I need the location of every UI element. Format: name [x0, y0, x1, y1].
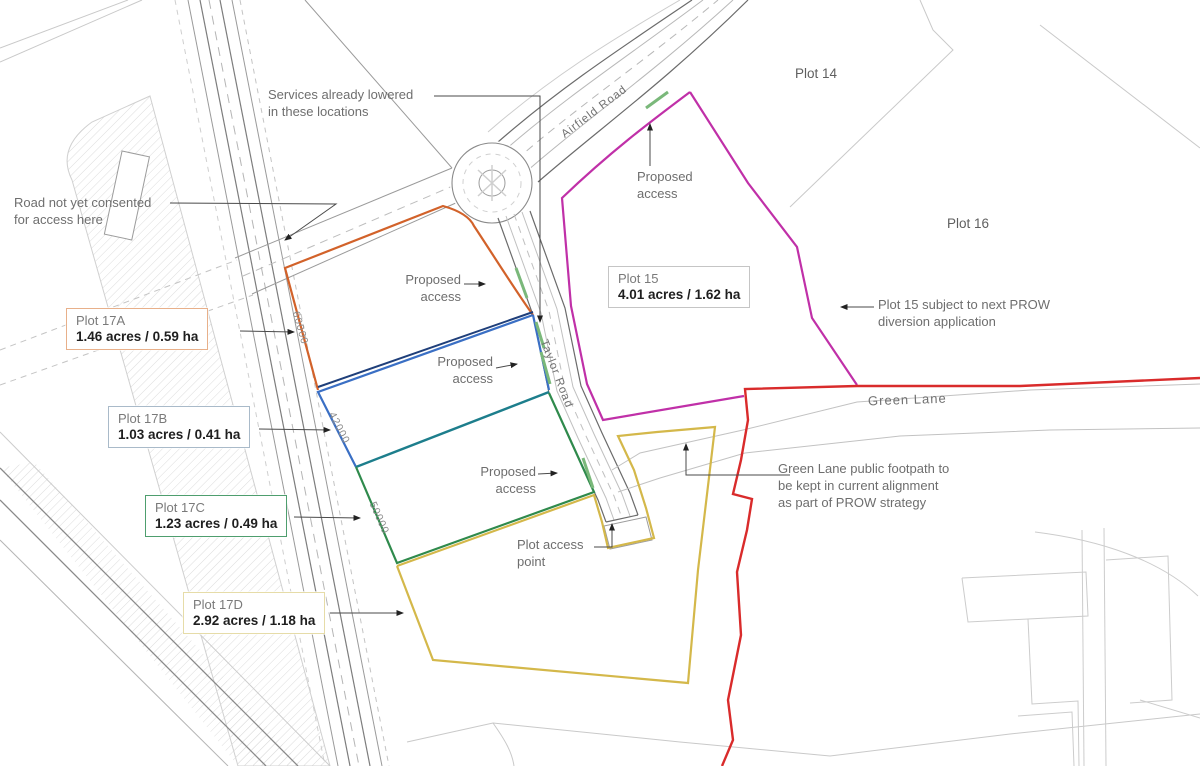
- plot-15-name: Plot 15: [618, 271, 740, 286]
- leader-plot17a: [240, 331, 294, 332]
- plot-17d-label-box: Plot 17D 2.92 acres / 1.18 ha: [183, 592, 325, 634]
- leader-access3: [538, 473, 557, 474]
- green-lane-name: Green Lane: [868, 391, 947, 409]
- proposed-access-label-4: Proposed access: [468, 463, 536, 497]
- leader-access2: [496, 364, 517, 368]
- plot-15-area: 4.01 acres / 1.62 ha: [618, 287, 740, 302]
- proposed-access-label-1: Proposed access: [637, 168, 693, 202]
- road-not-consented-note: Road not yet consented for access here: [14, 194, 151, 228]
- plot-17b-boundary: [318, 315, 533, 467]
- leader-road-note: [170, 203, 336, 240]
- plot-14-label: Plot 14: [795, 66, 837, 81]
- plot-17b-17c-boundary: [356, 392, 549, 467]
- leader-plot17b: [259, 429, 330, 430]
- plot-17a-label-box: Plot 17A 1.46 acres / 0.59 ha: [66, 308, 208, 350]
- roundabout: [450, 141, 534, 225]
- plot-access-point-label: Plot access point: [517, 536, 583, 570]
- plot-15-boundary: [562, 92, 857, 420]
- plot-17b-name: Plot 17B: [118, 411, 240, 426]
- plot-17c-name: Plot 17C: [155, 500, 277, 515]
- plot-15-label-box: Plot 15 4.01 acres / 1.62 ha: [608, 266, 750, 308]
- plot-17c-label-box: Plot 17C 1.23 acres / 0.49 ha: [145, 495, 287, 537]
- proposed-access-label-3: Proposed access: [425, 353, 493, 387]
- prow-note: Plot 15 subject to next PROW diversion a…: [878, 296, 1050, 330]
- plot-17b-label-box: Plot 17B 1.03 acres / 0.41 ha: [108, 406, 250, 448]
- plot-17d-area: 2.92 acres / 1.18 ha: [193, 613, 315, 628]
- services-note: Services already lowered in these locati…: [268, 86, 413, 120]
- site-plan: Services already lowered in these locati…: [0, 0, 1200, 766]
- plot-17d-name: Plot 17D: [193, 597, 315, 612]
- plot-17c-area: 1.23 acres / 0.49 ha: [155, 516, 277, 531]
- plot-17a-name: Plot 17A: [76, 313, 198, 328]
- plot-16-label: Plot 16: [947, 216, 989, 231]
- proposed-access-label-2: Proposed access: [393, 271, 461, 305]
- site-boundary-red: [722, 378, 1200, 766]
- leader-plot17c: [294, 517, 360, 518]
- plot-17b-area: 1.03 acres / 0.41 ha: [118, 427, 240, 442]
- plot-17a-area: 1.46 acres / 0.59 ha: [76, 329, 198, 344]
- footpath-note: Green Lane public footpath to be kept in…: [778, 460, 949, 511]
- buildings-outline: [962, 528, 1200, 766]
